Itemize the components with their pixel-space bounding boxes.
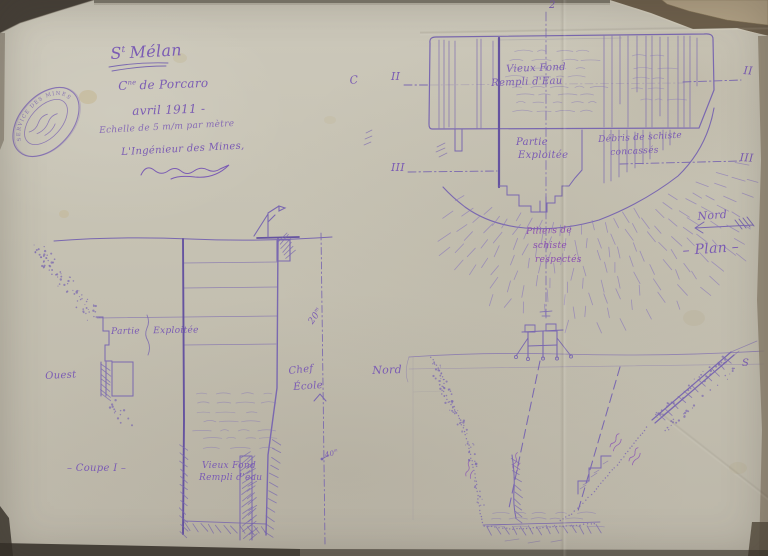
ink-stroke — [216, 393, 230, 394]
ink-stroke — [468, 448, 469, 449]
ink-stroke — [439, 388, 441, 390]
ink-stroke — [706, 196, 714, 201]
ink-stroke — [57, 276, 58, 277]
ink-stroke — [86, 307, 88, 309]
ink-stroke — [217, 402, 231, 403]
ink-stroke — [531, 518, 546, 519]
ink-stroke — [454, 406, 456, 408]
ink-stroke — [82, 310, 84, 312]
ink-stroke — [43, 253, 45, 255]
ink-stroke — [82, 308, 84, 310]
ink-stroke — [547, 290, 548, 302]
ink-stroke — [479, 510, 480, 511]
ink-stroke — [490, 277, 498, 288]
ink-stroke — [479, 505, 480, 506]
ink-stroke — [747, 179, 758, 182]
label-date: avril 1911 - — [132, 101, 206, 118]
ink-stroke — [581, 94, 594, 95]
ink-stroke — [612, 469, 613, 470]
ink-stroke — [717, 385, 718, 386]
ink-stroke — [269, 473, 278, 477]
ink-stroke — [224, 525, 231, 533]
ink-stroke — [36, 249, 38, 251]
ink-stroke — [446, 399, 447, 400]
ink-stroke — [464, 232, 472, 241]
ink-stroke — [246, 438, 256, 439]
ink-stroke — [109, 406, 111, 408]
ink-stroke — [538, 526, 551, 527]
ink-stroke — [203, 438, 221, 439]
ink-stroke — [95, 305, 97, 307]
label-note-ecole: École — [293, 380, 323, 393]
ink-stroke — [441, 393, 442, 394]
ink-stroke — [463, 420, 465, 422]
ink-stroke — [472, 464, 473, 465]
ink-stroke — [264, 393, 272, 394]
ink-stroke — [474, 453, 476, 455]
ink-stroke — [594, 491, 595, 492]
ink-stroke — [557, 51, 573, 52]
ink-stroke — [678, 419, 680, 421]
ink-stroke — [438, 367, 439, 368]
ink-stroke — [619, 462, 620, 463]
ink-stroke — [498, 38, 622, 40]
ink-stroke — [671, 425, 672, 426]
ink-stroke — [67, 280, 69, 282]
ink-stroke — [466, 438, 467, 439]
ink-stroke — [692, 407, 693, 408]
ink-stroke — [197, 412, 210, 413]
ink-stroke — [582, 503, 583, 504]
ink-stroke — [470, 447, 471, 448]
ink-stroke — [637, 437, 638, 438]
ink-stroke — [479, 491, 481, 493]
ink-stroke — [650, 265, 655, 275]
ink-stroke — [630, 256, 634, 267]
ink-stroke — [439, 384, 441, 386]
ink-stroke — [120, 414, 121, 415]
ink-stroke — [482, 499, 483, 500]
ink-stroke — [632, 224, 637, 233]
ink-stroke — [646, 309, 651, 319]
ink-stroke — [80, 299, 82, 301]
ink-stroke — [683, 227, 692, 234]
edge-left-sliver — [0, 33, 5, 150]
ink-stroke — [231, 447, 251, 448]
ink-stroke — [69, 276, 71, 278]
ink-stroke — [655, 414, 657, 416]
plan-columns — [439, 36, 697, 128]
ink-stroke — [542, 527, 543, 528]
ink-stroke — [470, 265, 476, 275]
ink-stroke — [87, 299, 88, 300]
ink-stroke — [461, 431, 463, 433]
ink-stroke — [444, 402, 446, 404]
label-axis-2: 2 — [549, 0, 556, 11]
ink-stroke — [513, 238, 517, 249]
ink-stroke — [683, 416, 685, 418]
ink-stroke — [667, 99, 686, 100]
ink-stroke — [439, 380, 441, 382]
ink-stroke — [642, 433, 643, 434]
ink-stroke — [679, 211, 689, 217]
ink-stroke — [324, 116, 336, 124]
ink-stroke — [45, 257, 47, 259]
ink-stroke — [441, 390, 442, 391]
ink-stroke — [513, 110, 532, 112]
ink-stroke — [538, 50, 547, 51]
ink-stroke — [568, 515, 569, 516]
edge-right-sliver — [757, 36, 768, 556]
ink-stroke — [435, 378, 437, 380]
ink-stroke — [655, 99, 662, 100]
ink-stroke — [515, 505, 522, 510]
ink-stroke — [583, 524, 584, 525]
coupe2-surface — [409, 351, 764, 357]
ink-stroke — [670, 420, 672, 422]
ink-stroke — [561, 526, 581, 527]
ink-stroke — [559, 526, 560, 527]
ink-stroke — [49, 269, 50, 270]
ink-stroke — [86, 301, 88, 303]
ink-stroke — [609, 472, 610, 473]
ink-stroke — [219, 421, 238, 422]
ink-stroke — [693, 193, 702, 198]
ink-stroke — [725, 375, 727, 377]
ink-stroke — [448, 402, 449, 403]
ink-stroke — [676, 270, 680, 280]
ink-stroke — [484, 224, 493, 233]
ink-stroke — [259, 438, 277, 439]
ink-stroke — [664, 430, 666, 432]
ink-stroke — [655, 226, 661, 233]
ink-stroke — [51, 261, 53, 263]
ink-stroke — [611, 234, 615, 244]
ink-stroke — [494, 246, 499, 257]
ink-stroke — [556, 512, 567, 513]
ink-stroke — [644, 430, 645, 431]
ink-stroke — [85, 313, 86, 314]
coupe2-surface2 — [409, 364, 764, 369]
ink-stroke — [439, 247, 450, 255]
ink-stroke — [668, 429, 669, 430]
ink-stroke — [466, 433, 467, 434]
ink-stroke — [458, 415, 459, 416]
ink-stroke — [94, 311, 96, 313]
ink-stroke — [623, 212, 630, 223]
ink-stroke — [537, 111, 551, 112]
ink-stroke — [709, 366, 711, 368]
ink-stroke — [59, 271, 61, 273]
ink-stroke — [517, 94, 534, 95]
plan-scribble-ticks — [364, 130, 447, 157]
ink-stroke — [81, 298, 82, 299]
ink-stroke — [476, 488, 477, 489]
ink-stroke — [481, 519, 482, 520]
ink-stroke — [481, 240, 488, 249]
ink-stroke — [474, 473, 475, 474]
ink-stroke — [579, 506, 580, 507]
ink-stroke — [512, 529, 513, 530]
ink-stroke — [236, 402, 255, 403]
ink-stroke — [451, 402, 453, 404]
ink-stroke — [617, 464, 618, 465]
ink-stroke — [465, 444, 466, 445]
ink-stroke — [450, 404, 451, 405]
ink-stroke — [473, 470, 474, 471]
ink-stroke — [633, 443, 634, 444]
ink-stroke — [475, 477, 476, 478]
coupe1-derrick — [254, 206, 290, 261]
ink-stroke — [583, 278, 584, 288]
ink-stroke — [573, 307, 575, 319]
ink-stroke — [560, 520, 561, 521]
ink-stroke — [663, 203, 672, 210]
ink-stroke — [732, 368, 734, 370]
ink-stroke — [526, 528, 527, 529]
ink-stroke — [243, 494, 251, 501]
ink-stroke — [732, 177, 745, 181]
ink-stroke — [715, 366, 717, 368]
ink-stroke — [94, 3, 610, 5]
ink-stroke — [588, 526, 605, 527]
edge-top-strip — [94, 0, 610, 3]
ink-stroke — [639, 285, 640, 295]
ink-stroke — [455, 244, 463, 253]
ink-stroke — [436, 365, 437, 366]
ink-stroke — [682, 397, 684, 399]
ink-stroke — [463, 427, 464, 428]
ink-stroke — [474, 480, 475, 481]
ink-stroke — [433, 359, 434, 360]
ink-stroke — [631, 446, 632, 447]
plan-outline — [429, 34, 714, 129]
label-ouest: Ouest — [45, 369, 77, 382]
ink-stroke — [51, 269, 53, 271]
ink-stroke — [583, 266, 586, 276]
title-underline — [109, 63, 168, 71]
ink-stroke — [73, 280, 75, 282]
ink-stroke — [517, 101, 526, 103]
ink-stroke — [585, 306, 586, 317]
ink-stroke — [440, 373, 441, 374]
ink-stroke — [629, 447, 630, 448]
ink-stroke — [201, 524, 208, 532]
section-lines — [404, 80, 741, 172]
ink-stroke — [452, 411, 453, 412]
ink-stroke — [690, 388, 692, 390]
ink-stroke — [520, 527, 526, 536]
ink-stroke — [476, 484, 477, 485]
ink-stroke — [451, 400, 453, 402]
ink-stroke — [734, 368, 735, 369]
ink-stroke — [457, 410, 458, 411]
ink-stroke — [589, 293, 593, 305]
ink-stroke — [550, 518, 560, 519]
ink-stroke — [443, 211, 453, 218]
ink-stroke — [684, 412, 686, 414]
ink-stroke — [76, 291, 78, 293]
coupe1-shaft-wall-left — [183, 239, 184, 534]
ink-stroke — [113, 408, 115, 410]
ink-stroke — [528, 526, 533, 534]
ink-stroke — [565, 516, 566, 517]
ink-stroke — [456, 412, 457, 413]
ink-stroke — [491, 266, 499, 275]
ink-stroke — [455, 196, 464, 201]
ink-stroke — [193, 524, 198, 532]
ink-stroke — [461, 424, 462, 425]
ink-stroke — [625, 229, 633, 240]
ink-stroke — [729, 373, 730, 374]
ink-stroke — [269, 491, 277, 496]
ink-stroke — [466, 429, 468, 431]
ink-stroke — [79, 296, 80, 297]
ink-stroke — [114, 412, 115, 413]
ink-stroke — [706, 378, 707, 379]
ink-stroke — [464, 460, 476, 478]
coupe2-floor — [483, 522, 600, 525]
ink-stroke — [667, 427, 669, 429]
ink-stroke — [712, 262, 724, 272]
tiny-note-squiggle — [608, 433, 624, 451]
shaft-dashed-lines — [509, 361, 620, 511]
ink-stroke — [464, 431, 465, 432]
ink-stroke — [694, 379, 695, 380]
ink-stroke — [581, 110, 593, 112]
ink-stroke — [454, 411, 456, 413]
ink-stroke — [451, 393, 453, 395]
ink-stroke — [493, 232, 502, 243]
ink-stroke — [504, 299, 511, 308]
label-partie-1: Partie — [516, 137, 548, 148]
mark-40-unit: m — [333, 447, 338, 453]
ink-stroke — [99, 317, 100, 318]
edge-bottom-strip-left — [0, 543, 300, 556]
ink-stroke — [472, 467, 473, 468]
ink-stroke — [556, 110, 575, 111]
ink-stroke — [272, 448, 280, 452]
ink-stroke — [604, 294, 608, 303]
ink-stroke — [227, 437, 236, 438]
ink-stroke — [519, 528, 520, 529]
ink-stroke — [608, 433, 624, 451]
ink-stroke — [522, 286, 524, 298]
ink-stroke — [565, 518, 582, 519]
ink-stroke — [79, 90, 97, 104]
ink-stamp: SERVICE DES MINES — [0, 74, 93, 170]
ink-stroke — [659, 242, 667, 250]
ink-stroke — [590, 86, 608, 87]
ink-stroke — [742, 193, 753, 197]
ink-stroke — [449, 410, 450, 411]
ink-stroke — [455, 260, 464, 270]
ink-stroke — [678, 285, 688, 296]
ink-stroke — [688, 384, 690, 386]
ink-stroke — [50, 253, 52, 255]
ink-stroke — [112, 406, 114, 408]
ink-stroke — [478, 502, 479, 503]
ink-stroke — [704, 380, 706, 382]
ink-stroke — [494, 526, 495, 527]
ink-stroke — [111, 403, 113, 405]
ink-stroke — [440, 365, 441, 366]
ink-stroke — [667, 403, 669, 405]
label-grid-letter: C — [349, 73, 359, 87]
ink-stroke — [57, 286, 58, 287]
ink-stroke — [473, 444, 474, 445]
ink-stroke — [532, 59, 551, 60]
ink-stroke — [215, 525, 221, 532]
ink-stroke — [692, 271, 697, 279]
ink-stroke — [724, 196, 737, 202]
ink-stroke — [452, 407, 453, 408]
ink-stroke — [597, 250, 600, 260]
ink-stroke — [457, 424, 459, 426]
coupe2-surface-dip — [406, 357, 409, 382]
plan-pit-edge — [443, 108, 714, 229]
ink-stroke — [231, 526, 238, 533]
ink-stroke — [208, 524, 213, 533]
center-check-mark — [314, 394, 326, 401]
ink-stroke — [258, 430, 276, 431]
ink-stroke — [591, 494, 592, 495]
ink-stroke — [479, 496, 481, 498]
ink-stroke — [88, 311, 90, 313]
ink-stroke — [60, 276, 62, 278]
ink-stroke — [454, 409, 455, 410]
page-title: StMélan — [110, 40, 182, 63]
label-vieux-fond-coupe1-2: Rempli d'eau — [199, 473, 262, 483]
ink-stroke — [656, 412, 658, 414]
ink-stroke — [459, 418, 460, 419]
ink-stroke — [462, 208, 473, 216]
ink-stroke — [468, 444, 469, 445]
coupe2-step-ticks — [580, 461, 608, 489]
ink-stroke — [669, 219, 677, 226]
ink-stroke — [39, 254, 41, 256]
ink-stroke — [506, 528, 507, 529]
ink-stroke — [640, 435, 641, 436]
ink-stroke — [597, 323, 602, 333]
ink-stroke — [54, 258, 56, 260]
ink-stroke — [585, 500, 586, 501]
ink-stroke — [487, 527, 492, 536]
ink-stroke — [216, 412, 235, 413]
ink-stroke — [246, 412, 257, 413]
ink-stroke — [475, 463, 477, 465]
ink-stroke — [59, 210, 69, 218]
ink-stroke — [565, 320, 569, 333]
ink-stroke — [627, 451, 628, 452]
ink-stroke — [634, 67, 652, 68]
ink-stroke — [605, 477, 606, 478]
ink-stroke — [647, 232, 655, 242]
ink-stroke — [272, 440, 280, 445]
ink-stroke — [484, 525, 485, 526]
ink-stroke — [562, 59, 578, 60]
ink-stroke — [451, 410, 453, 412]
ink-stroke — [727, 379, 728, 380]
ink-stroke — [196, 393, 206, 394]
ink-stroke — [467, 248, 475, 257]
ink-stroke — [49, 265, 51, 267]
ink-stroke — [558, 94, 577, 95]
ink-stroke — [509, 528, 510, 529]
ink-stroke — [430, 357, 431, 358]
ink-stroke — [272, 457, 281, 463]
ink-stroke — [732, 212, 740, 217]
